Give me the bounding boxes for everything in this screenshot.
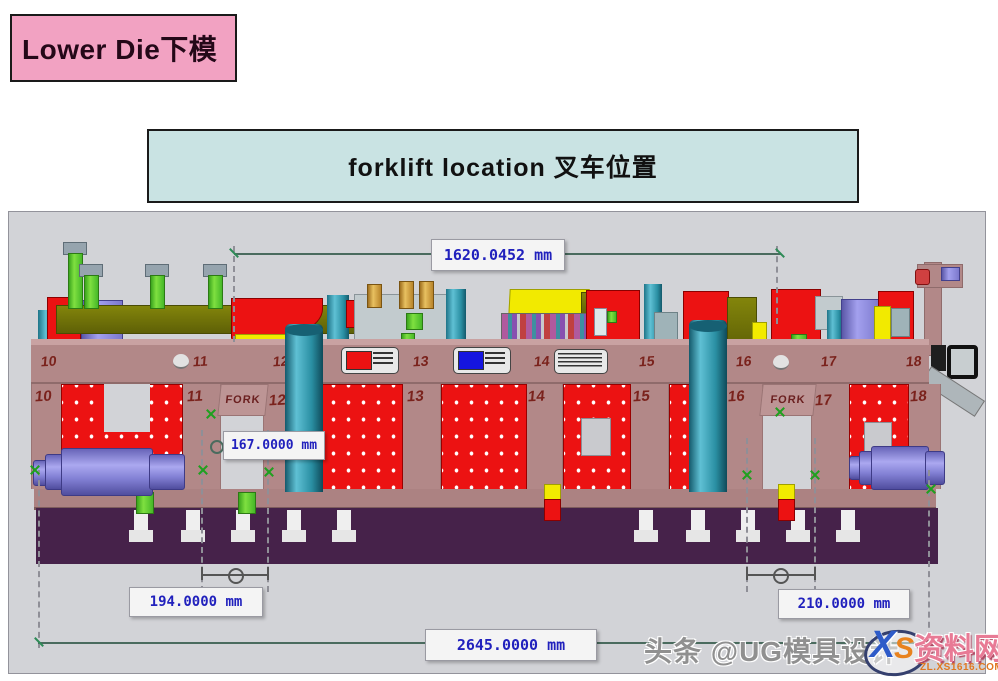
datum-mark [925, 483, 937, 495]
dimension-tick [267, 567, 269, 580]
cad-drawing-canvas: 10 11 12 13 14 15 16 17 18 FORK [8, 211, 986, 674]
fork-pocket-label-left: FORK [217, 384, 268, 416]
datum-mark [205, 408, 217, 420]
datum-mark [263, 466, 275, 478]
beam-number: 17 [820, 353, 837, 370]
logo-letter-s: S [894, 632, 914, 666]
motor-cap [149, 454, 185, 490]
beam-number: 13 [412, 353, 429, 370]
bolt-shaft [399, 281, 414, 309]
support-foot [741, 510, 755, 530]
extension-line [38, 470, 40, 648]
dimension-top-width: 1620.0452 mm [431, 239, 565, 271]
datum-mark [197, 464, 209, 476]
support-foot [287, 510, 301, 530]
support-foot [841, 510, 855, 530]
logo-domain: ZL.XS1616.COM [920, 662, 998, 673]
knob [915, 269, 930, 285]
motor-body [61, 448, 153, 496]
insert-window [581, 418, 611, 456]
dimension-marker [210, 440, 224, 454]
watermark: 头条 @UG模具设计 X S 资料网 ZL.XS1616.COM [644, 628, 994, 678]
bolt-shaft [84, 275, 99, 309]
motor-body [871, 446, 929, 490]
extension-line [233, 246, 235, 342]
beam-number: 18 [905, 353, 922, 370]
dimension-tick [201, 567, 203, 580]
nameplate-lines [373, 352, 393, 367]
insert-notch [104, 384, 150, 432]
leg-number: 14 [527, 388, 545, 406]
dimension-value: 2645.0000 mm [457, 636, 565, 654]
dimension-right-fork-span: 210.0000 mm [778, 589, 910, 619]
nameplate-lines [558, 353, 602, 369]
beam-number: 14 [533, 353, 550, 370]
fork-label: FORK [225, 394, 261, 406]
lift-hole [773, 355, 789, 370]
leg-number: 11 [186, 388, 203, 406]
dimension-marker [773, 568, 789, 584]
leg-number: 12 [268, 392, 286, 410]
nameplate-red [341, 347, 399, 374]
leg-number: 15 [632, 388, 650, 406]
datum-mark [29, 464, 41, 476]
leg-number: 10 [34, 388, 52, 406]
dimension-value: 1620.0452 mm [444, 246, 552, 264]
machinery-block [607, 311, 617, 323]
machinery-block [891, 308, 910, 337]
leg-number: 16 [727, 388, 745, 406]
stop-pad [238, 492, 256, 514]
guide-pillar-cylinder [689, 320, 727, 492]
subtitle-text: forklift location 叉车位置 [348, 148, 658, 184]
fork-pocket-label-right: FORK [759, 384, 816, 416]
marker-pad [544, 499, 561, 521]
bolt-shaft [367, 284, 382, 308]
support-foot [691, 510, 705, 530]
dimension-value: 210.0000 mm [798, 596, 891, 612]
dimension-value: 167.0000 mm [231, 438, 317, 453]
dimension-total-length: 2645.0000 mm [425, 629, 597, 661]
dimension-tick [814, 567, 816, 580]
extension-line [776, 246, 778, 324]
dimension-fork-pocket: 167.0000 mm [223, 431, 325, 460]
bolt-shaft [208, 275, 223, 309]
watermark-logo: X S 资料网 ZL.XS1616.COM [858, 622, 994, 678]
datum-mark [741, 469, 753, 481]
nameplate-text [554, 349, 608, 374]
dimension-left-fork-span: 194.0000 mm [129, 587, 263, 617]
nameplate-swatch [458, 351, 484, 370]
dimension-tick [746, 567, 748, 580]
logo-letter-x: X [870, 624, 895, 667]
beam-number: 16 [735, 353, 752, 370]
machinery-block [594, 308, 607, 336]
bolt-shaft [68, 253, 83, 309]
leg-number: 18 [909, 388, 927, 406]
subtitle-banner: forklift location 叉车位置 [147, 129, 859, 203]
leg-number: 17 [814, 392, 832, 410]
datum-mark [809, 469, 821, 481]
nameplate-swatch [346, 351, 372, 370]
guide-pillar-cylinder [285, 324, 323, 492]
datum-mark [774, 406, 786, 418]
title-text: Lower Die下模 [22, 28, 217, 68]
bolt-shaft [150, 275, 165, 309]
handle-ring [947, 345, 978, 379]
support-foot [337, 510, 351, 530]
bolt-shaft [419, 281, 434, 309]
die-insert-red [441, 384, 527, 491]
nameplate-blue [453, 347, 511, 374]
beam-number: 15 [638, 353, 655, 370]
nameplate-lines [485, 352, 505, 367]
beam-number: 10 [40, 353, 57, 370]
title-banner: Lower Die下模 [10, 14, 237, 82]
beam-number: 11 [192, 353, 208, 370]
dimension-marker [228, 568, 244, 584]
motor-right [849, 446, 947, 488]
slide-page: Lower Die下模 forklift location 叉车位置 [0, 0, 998, 681]
marker-pad [778, 499, 795, 521]
fork-label: FORK [770, 394, 806, 406]
machinery-block [406, 313, 423, 330]
machinery-block [941, 267, 960, 281]
dimension-value: 194.0000 mm [150, 594, 243, 610]
motor-left [31, 448, 183, 494]
support-foot [186, 510, 200, 530]
leg-number: 13 [406, 388, 424, 406]
support-foot [639, 510, 653, 530]
lift-hole [173, 354, 189, 369]
